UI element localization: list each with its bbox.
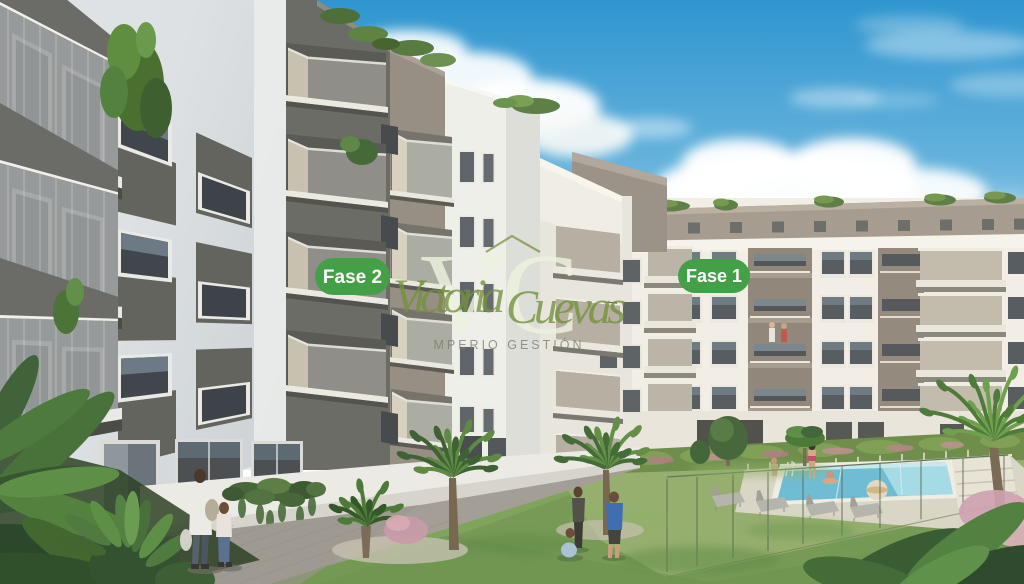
svg-text:MPERIO GESTIÓN: MPERIO GESTIÓN (433, 337, 584, 352)
svg-text:Victoria: Victoria (393, 270, 505, 323)
svg-text:Fase 2: Fase 2 (323, 267, 382, 288)
svg-text:Fase 1: Fase 1 (686, 266, 742, 286)
svg-text:Cuevas: Cuevas (506, 281, 626, 334)
